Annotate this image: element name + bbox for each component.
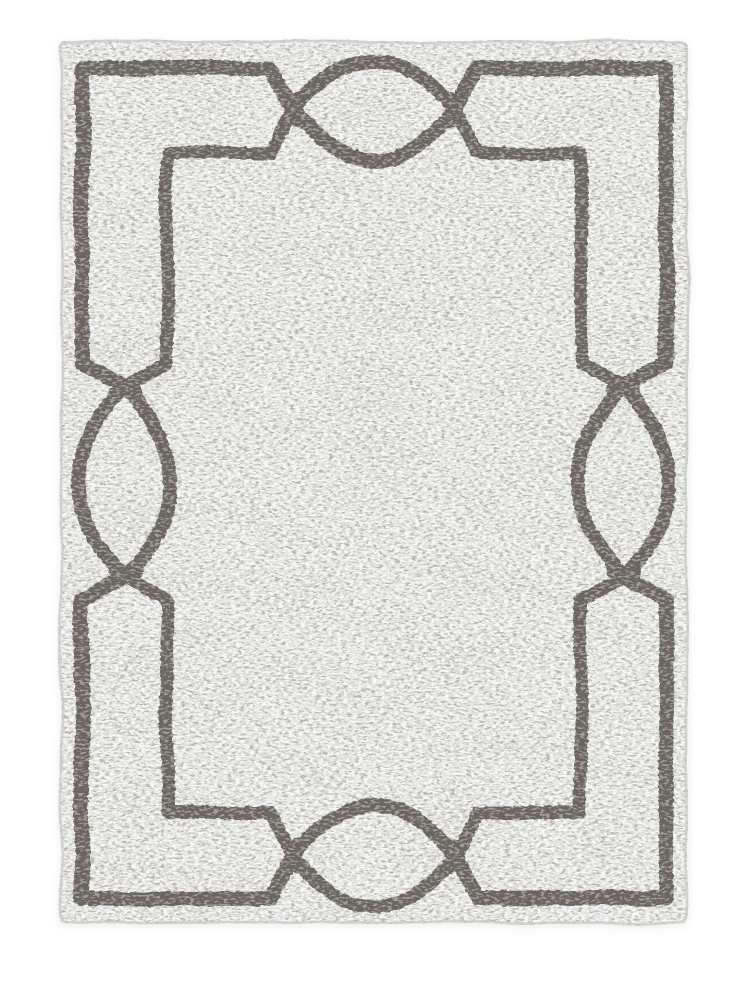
rug: [60, 40, 688, 924]
product-photo-stage: [0, 0, 752, 1000]
rug-photo: [0, 0, 752, 1000]
rug-texture-overlay-flecks: [60, 40, 688, 924]
